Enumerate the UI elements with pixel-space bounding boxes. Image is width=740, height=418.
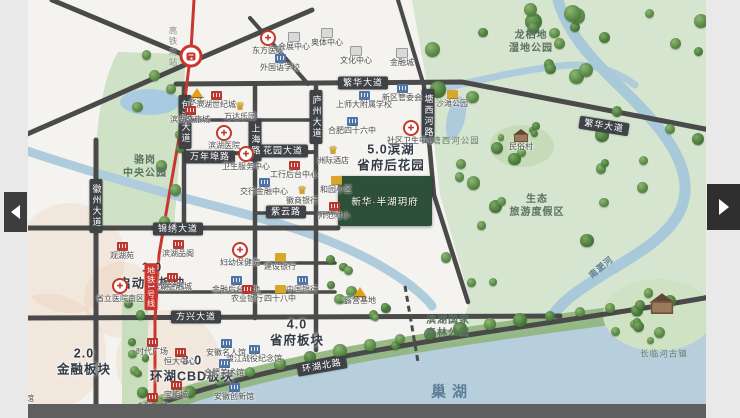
metro-station-icon [180,45,203,68]
central-park-pond [120,89,180,115]
carousel-next-button[interactable] [707,184,740,230]
hsr-station-label: 高铁南站 [167,26,179,68]
fangxing-avenue [28,316,560,318]
green-strip-park [122,296,148,418]
folk-village-mound [490,125,554,167]
right-arrow-icon [719,199,729,215]
project-name: 新华·半湖玥府 [351,194,418,208]
bottom-frame-bar [28,404,706,418]
ancient-town-island [603,279,713,351]
central-park [96,52,186,228]
map-carousel-slide: 新华·半湖玥府 繁华大道繁华大道锦绣大道方兴大道万年埠路花园大道紫云路环湖北路徽… [0,0,740,418]
metro-line-badge: 地铁1号线 [145,263,158,310]
project-marker: 新华·半湖玥府 [338,176,432,226]
carousel-prev-button[interactable] [4,192,27,232]
left-arrow-icon [11,205,20,219]
